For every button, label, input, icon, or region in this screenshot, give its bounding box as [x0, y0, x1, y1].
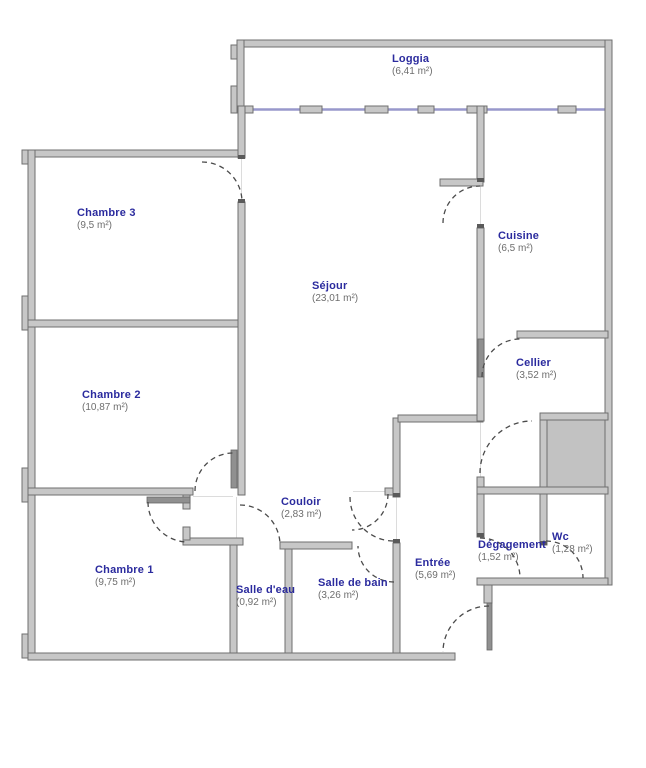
door-arc-wc: [546, 541, 583, 578]
door-arc-chambre1: [148, 502, 188, 542]
door-arc-cuisine: [443, 186, 480, 223]
door-arc-salle-deau: [240, 505, 280, 545]
door-arc-front-door: [443, 606, 489, 652]
windows: [32, 110, 606, 631]
door-arc-chambre3: [202, 162, 242, 202]
door-arc-chambre2: [195, 453, 233, 491]
floor-plan-page: Loggia (6,41 m²) Chambre 3 (9,5 m²) Séjo…: [0, 0, 646, 768]
technical-shaft: [547, 420, 605, 487]
door-arc-entree-cellier: [480, 421, 532, 473]
door-arc-sejour-couloir: [352, 494, 388, 530]
door-arc-cellier: [482, 339, 520, 377]
door-arc-couloir-entree: [350, 497, 394, 541]
walls: [22, 40, 612, 660]
door-arc-salle-de-bain: [358, 546, 394, 582]
door-arc-degagement: [480, 538, 520, 578]
door-leaves: [147, 339, 492, 650]
floor-plan-drawing: [0, 0, 646, 768]
